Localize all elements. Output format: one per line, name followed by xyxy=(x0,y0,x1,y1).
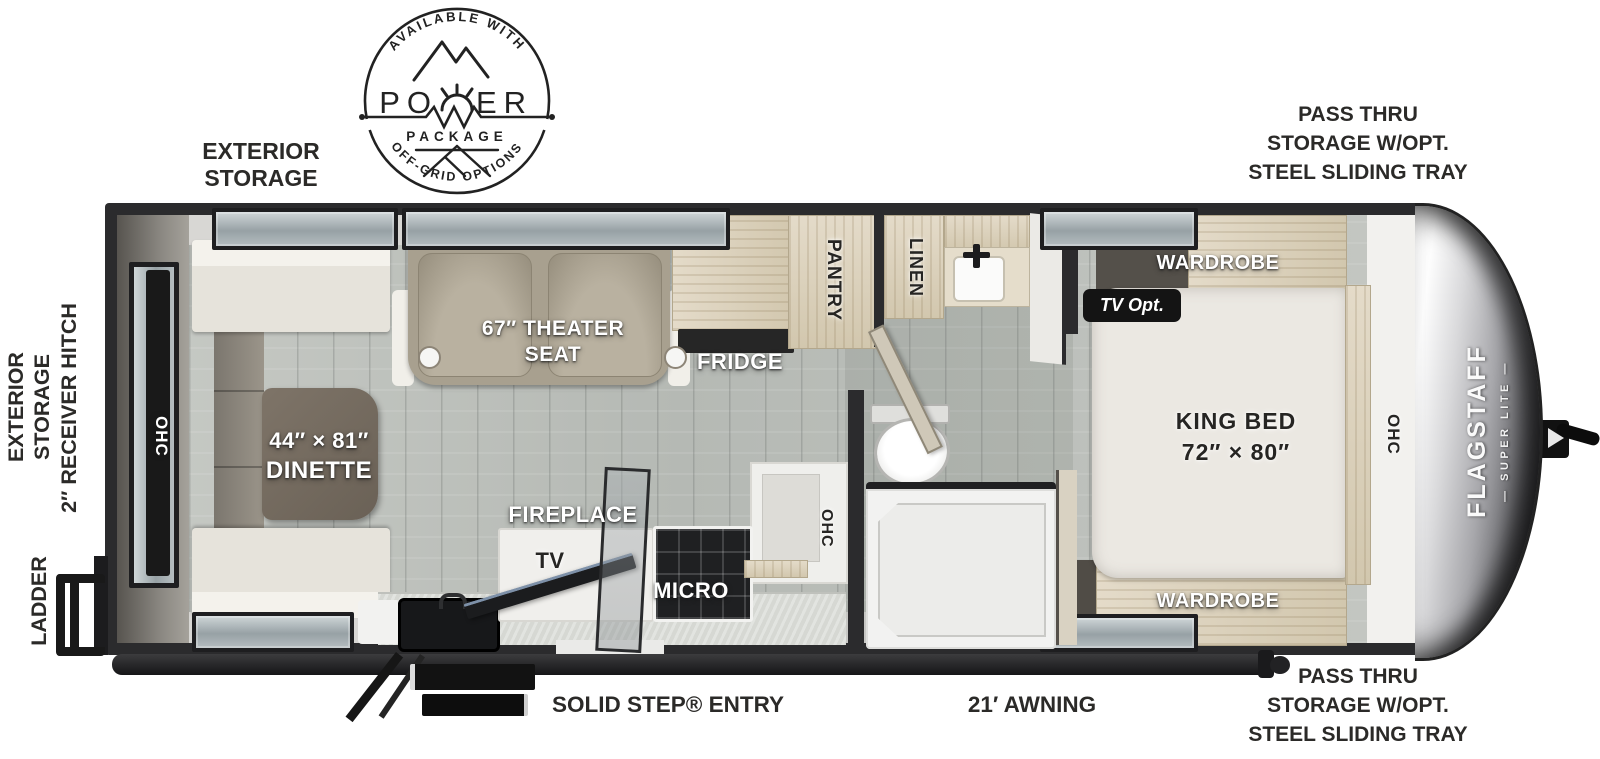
dinette-text: DINETTE xyxy=(238,456,400,486)
theater-window xyxy=(402,208,730,250)
sun-icon xyxy=(442,85,472,110)
pass-thru-bottom-line2: STORAGE W/OPT. xyxy=(1178,691,1538,720)
badge-power-right: ER xyxy=(476,85,533,120)
king-bed-line2: 72″ × 80″ xyxy=(1130,437,1342,468)
fridge-label: FRIDGE xyxy=(678,349,802,375)
dinette-top-window xyxy=(212,208,398,250)
step-tread-1 xyxy=(410,664,535,690)
exterior-storage-top-label: EXTERIOR STORAGE xyxy=(146,138,376,192)
sink-side-platform xyxy=(358,600,400,644)
theater-line1: 67″ THEATER xyxy=(448,316,658,342)
dinette-size-text: 44″ × 81″ xyxy=(238,426,400,456)
exterior-storage-left-line2: STORAGE xyxy=(29,277,55,537)
brand-series-label: — SUPER LITE — xyxy=(1499,346,1513,516)
ladder-frame xyxy=(56,574,105,656)
bathroom-left-wall xyxy=(848,390,864,643)
bathroom-faucet-handle xyxy=(963,252,990,258)
badge-package-text: PACKAGE xyxy=(406,129,508,144)
rear-ohc-label: OHC xyxy=(146,394,170,478)
exterior-storage-left-line1: EXTERIOR xyxy=(3,277,29,537)
pass-thru-top-line1: PASS THRU xyxy=(1178,100,1538,129)
pantry-label: PANTRY xyxy=(817,222,843,338)
awning-label: 21′ AWNING xyxy=(922,692,1142,718)
exterior-storage-top-line2: STORAGE xyxy=(146,165,376,192)
ladder-icon xyxy=(56,574,108,652)
mountains-icon xyxy=(414,42,488,80)
exterior-storage-top-line1: EXTERIOR xyxy=(146,138,376,165)
range-stove xyxy=(653,526,753,622)
dinette-label: 44″ × 81″ DINETTE xyxy=(238,426,400,486)
solid-step-entry-label: SOLID STEP® ENTRY xyxy=(518,692,818,718)
step-tread-2 xyxy=(422,694,528,716)
theater-seat-label: 67″ THEATER SEAT xyxy=(448,316,658,368)
tv-opt-label: TV Opt. xyxy=(1100,295,1164,316)
wardrobe-bottom-label: WARDROBE xyxy=(1118,590,1318,613)
floorplan-page: AVAILABLE WITH PO ER PACKAGE OFF-GRID OP… xyxy=(0,0,1600,759)
front-ohc-label: OHC xyxy=(1374,398,1402,470)
entry-steps-icon xyxy=(362,652,542,730)
pass-thru-top-line2: STORAGE W/OPT. xyxy=(1178,129,1538,158)
badge-top-arc-text: AVAILABLE WITH xyxy=(385,9,529,54)
bed-headboard-strip xyxy=(1345,285,1371,585)
shower xyxy=(866,482,1056,649)
fireplace-label: FIREPLACE xyxy=(493,502,653,528)
kitchen-shelf xyxy=(744,560,808,578)
receiver-hitch-label: 2″ RECEIVER HITCH xyxy=(57,258,83,558)
micro-label: MICRO xyxy=(638,578,744,604)
vanity-counter xyxy=(944,247,1030,307)
kitchen-ohc-label: OHC xyxy=(808,496,834,560)
pass-thru-storage-bottom-label: PASS THRU STORAGE W/OPT. STEEL SLIDING T… xyxy=(1178,662,1538,749)
pass-thru-storage-top-label: PASS THRU STORAGE W/OPT. STEEL SLIDING T… xyxy=(1178,100,1538,187)
tv-opt-badge: TV Opt. xyxy=(1083,289,1181,322)
tv-label: TV xyxy=(522,548,578,574)
ladder-label: LADDER xyxy=(27,546,53,656)
awning-end-cap xyxy=(1270,656,1290,674)
power-package-badge: AVAILABLE WITH PO ER PACKAGE OFF-GRID OP… xyxy=(352,0,562,200)
ladder-rung xyxy=(70,583,79,647)
cupholder-left xyxy=(418,346,441,369)
king-bed-label: KING BED 72″ × 80″ xyxy=(1130,406,1342,468)
bedroom-top-window xyxy=(1040,208,1198,250)
pass-thru-bottom-line3: STEEL SLIDING TRAY xyxy=(1178,720,1538,749)
brand-name-label: FLAGSTAFF xyxy=(1463,316,1493,546)
dinette-bottom-window xyxy=(192,612,354,652)
vanity-upper-cabinet xyxy=(944,215,1030,251)
kitchen-faucet xyxy=(439,593,467,609)
shower-pan xyxy=(878,503,1046,637)
linen-label: LINEN xyxy=(899,220,925,314)
king-bed-line1: KING BED xyxy=(1130,406,1342,437)
awning-bar xyxy=(112,654,1272,675)
exterior-storage-left-label: EXTERIOR STORAGE xyxy=(3,277,57,537)
shower-side-wall xyxy=(1056,470,1077,645)
pass-thru-top-line3: STEEL SLIDING TRAY xyxy=(1178,158,1538,187)
entry-door-glass xyxy=(595,467,651,653)
dinette-bench-top xyxy=(192,240,390,332)
wardrobe-top-label: WARDROBE xyxy=(1118,252,1318,275)
theater-line2: SEAT xyxy=(448,342,658,368)
